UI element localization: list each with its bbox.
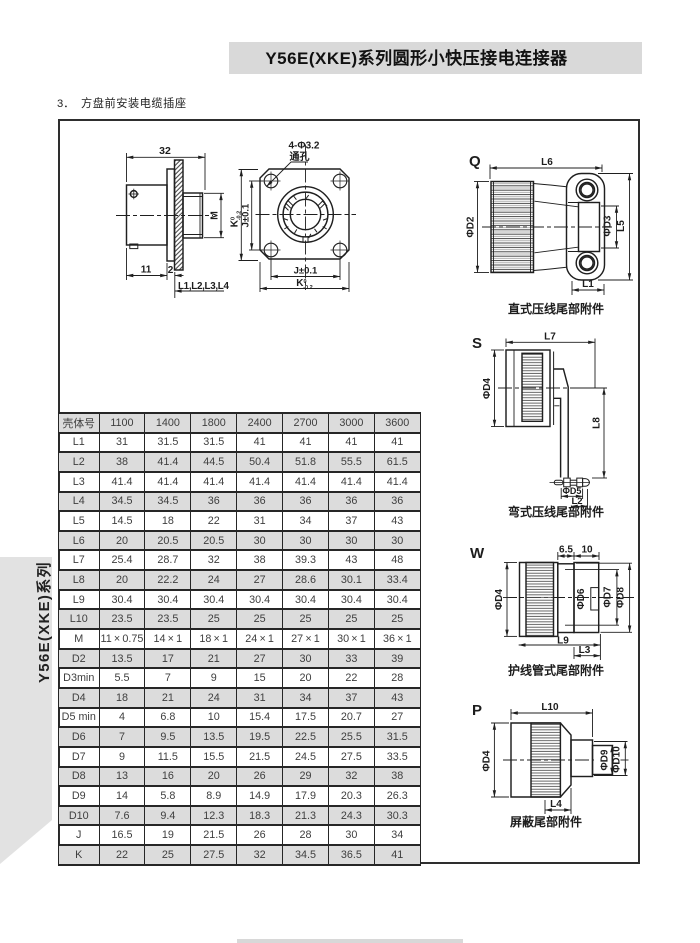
svg-text:直式压线尾部附件: 直式压线尾部附件 xyxy=(508,301,604,316)
svg-text:ΦD5: ΦD5 xyxy=(563,486,582,496)
svg-text:11: 11 xyxy=(141,265,152,276)
svg-text:J±0.1: J±0.1 xyxy=(240,203,251,227)
svg-text:L8: L8 xyxy=(592,417,603,429)
svg-text:护线管式尾部附件: 护线管式尾部附件 xyxy=(508,663,604,678)
svg-text:L5: L5 xyxy=(616,220,627,232)
svg-text:M: M xyxy=(209,211,221,220)
svg-text:弯式压线尾部附件: 弯式压线尾部附件 xyxy=(508,504,604,519)
svg-text:P: P xyxy=(472,702,482,719)
svg-text:ΦD8: ΦD8 xyxy=(616,587,627,608)
svg-text:L7: L7 xyxy=(544,332,556,343)
svg-text:4-Φ3.2: 4-Φ3.2 xyxy=(288,141,319,152)
svg-text:W: W xyxy=(470,545,485,562)
svg-text:ΦD10: ΦD10 xyxy=(612,746,623,773)
svg-text:32: 32 xyxy=(159,145,171,157)
svg-text:J±0.1: J±0.1 xyxy=(294,266,318,277)
svg-text:Q: Q xyxy=(469,153,481,170)
svg-text:ΦD6: ΦD6 xyxy=(576,588,587,609)
svg-text:S: S xyxy=(472,335,482,352)
svg-text:L6: L6 xyxy=(541,157,553,168)
svg-text:L4: L4 xyxy=(550,799,562,810)
svg-text:L10: L10 xyxy=(541,702,559,713)
svg-text:L3: L3 xyxy=(579,645,591,656)
svg-text:通孔: 通孔 xyxy=(290,150,310,163)
svg-text:L9: L9 xyxy=(557,636,569,647)
svg-text:2: 2 xyxy=(168,265,174,276)
svg-text:ΦD3: ΦD3 xyxy=(603,215,614,236)
svg-text:L1: L1 xyxy=(582,279,594,290)
svg-text:K0-0.2: K0-0.2 xyxy=(296,278,312,291)
svg-text:ΦD4: ΦD4 xyxy=(482,750,493,771)
svg-text:ΦD7: ΦD7 xyxy=(603,586,614,607)
svg-text:L1,L2,L3,L4: L1,L2,L3,L4 xyxy=(178,281,229,292)
svg-text:ΦD9: ΦD9 xyxy=(600,749,611,770)
svg-text:6.5: 6.5 xyxy=(559,545,573,556)
svg-text:ΦD4: ΦD4 xyxy=(482,378,493,399)
svg-text:屏蔽尾部附件: 屏蔽尾部附件 xyxy=(509,814,582,829)
svg-text:10: 10 xyxy=(581,545,593,556)
svg-text:ΦD2: ΦD2 xyxy=(466,216,477,237)
svg-text:ΦD4: ΦD4 xyxy=(494,589,505,610)
